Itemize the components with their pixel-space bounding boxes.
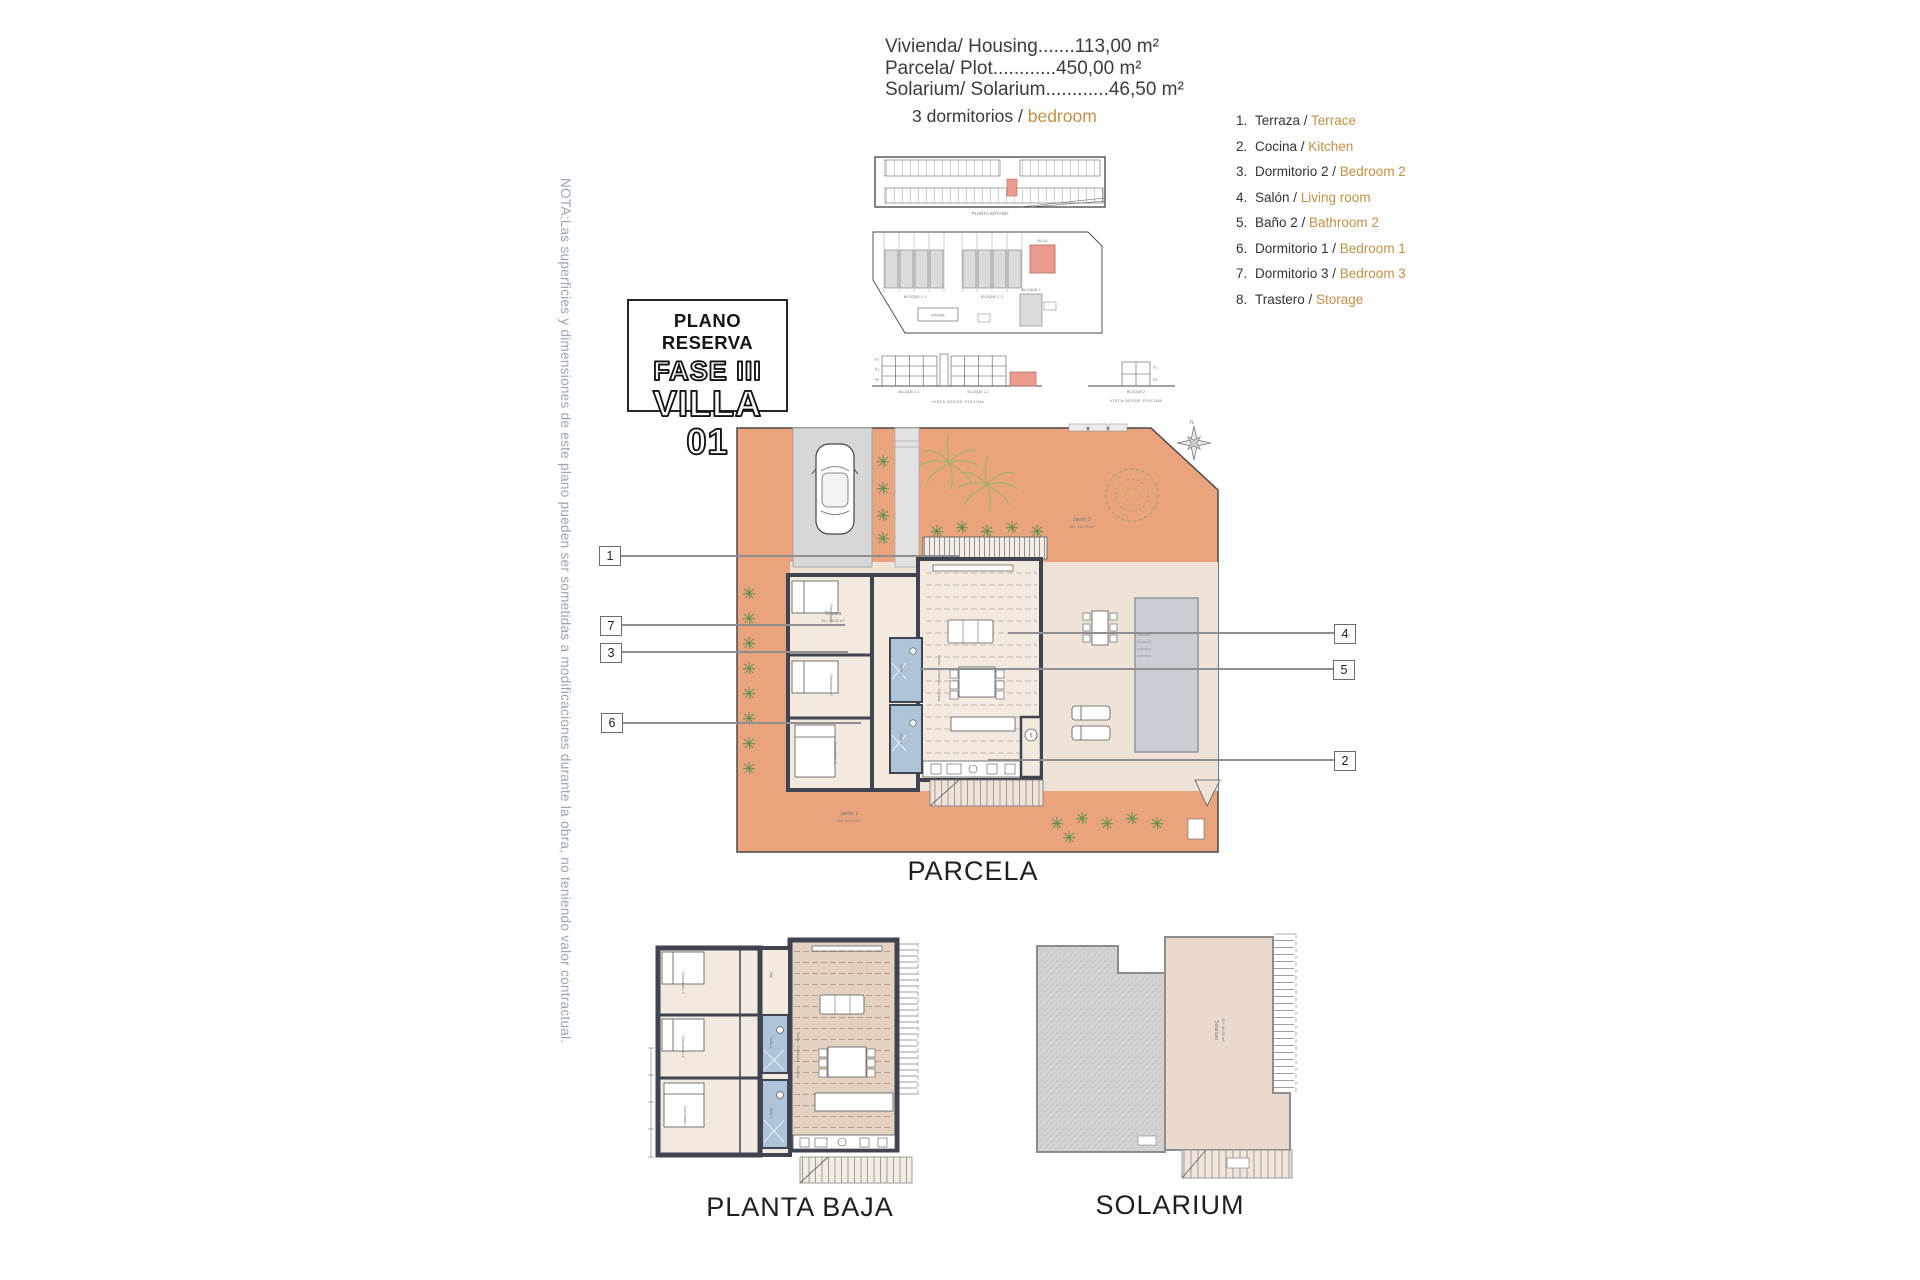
legend-item-dormitorio3: 7.Dormitorio 3 / Bedroom 3 <box>1236 266 1406 281</box>
bathroom-1 <box>890 705 922 773</box>
svg-text:8: 8 <box>1030 733 1033 739</box>
callout-box-4: 4 <box>1334 624 1356 644</box>
compass-icon: N <box>1177 420 1211 460</box>
callout-line-5 <box>920 668 1333 670</box>
callout-box-5: 5 <box>1333 660 1355 680</box>
callout-line-4 <box>1008 632 1334 634</box>
svg-text:Jardín 1: Jardín 1 <box>840 811 858 817</box>
bedrooms-heading: 3 dormitorios / bedroom <box>912 106 1097 127</box>
highlighted-villa-elevation <box>1010 372 1036 386</box>
sofa <box>948 620 993 643</box>
basement-caption: PLANTA SÓTANO <box>972 210 1009 216</box>
svg-text:BLOQUE 2: BLOQUE 2 <box>1127 390 1145 394</box>
svg-text:Dormitorio 2: Dormitorio 2 <box>829 674 834 697</box>
vertical-disclaimer-note: NOTA:Las superficies y dimensiones de es… <box>558 178 573 923</box>
svg-text:Salón - Comedor - Cocina: Salón - Comedor - Cocina <box>937 655 942 702</box>
pool <box>1135 598 1198 752</box>
villa-building: 8 <box>788 559 1041 790</box>
pb-bathroom-1 <box>762 1080 788 1148</box>
svg-text:P1: P1 <box>875 368 879 372</box>
tv-bench <box>933 565 1013 571</box>
utility-box <box>1188 819 1204 839</box>
plan-key-chips <box>1069 424 1127 431</box>
callout-box-1: 1 <box>599 546 621 566</box>
svg-text:Baño 1: Baño 1 <box>899 733 903 744</box>
svg-text:BLOQUE 1.2: BLOQUE 1.2 <box>968 390 989 394</box>
svg-text:Dormitorio 1: Dormitorio 1 <box>683 1106 688 1129</box>
pergola-slats <box>899 943 918 1097</box>
site-diagrams-svg: PLANTA SÓTANO VILLA BLOQUE 1.1 BLOQ <box>870 150 1180 410</box>
callout-box-2: 2 <box>1334 751 1356 771</box>
callout-line-1 <box>619 555 959 557</box>
storage-room: 8 <box>1021 717 1041 777</box>
roof-hatch <box>1138 1136 1156 1145</box>
svg-text:Dormitorio 1: Dormitorio 1 <box>833 742 838 765</box>
svg-text:Solarium: Solarium <box>1213 1020 1219 1040</box>
pool-view-elevations: P2 P1 P0 BLOQUE 1.1 BLOQUE 1.2 VISTA DES… <box>872 354 1175 404</box>
pb-kitchen-island <box>815 1093 893 1111</box>
solarium-label: SOLARIUM <box>1015 1190 1325 1221</box>
svg-text:VISTA DESDE PISCINA: VISTA DESDE PISCINA <box>932 399 985 404</box>
exterior-stairs <box>930 780 1043 806</box>
kitchen-counter <box>923 761 1035 777</box>
legend-item-terraza: 1.Terraza / Terrace <box>1236 113 1406 128</box>
pb-bathroom-2 <box>762 1015 788 1073</box>
callout-line-3 <box>620 651 848 653</box>
highlighted-villa-garage <box>1007 179 1017 196</box>
legend-item-salon: 4.Salón / Living room <box>1236 190 1406 205</box>
svg-text:BLOQUE 1.1: BLOQUE 1.1 <box>904 295 926 299</box>
svg-text:P0: P0 <box>875 378 879 382</box>
svg-text:VILLA: VILLA <box>1037 239 1048 243</box>
callout-box-3: 3 <box>600 643 622 663</box>
legend-item-dormitorio1: 6.Dormitorio 1 / Bedroom 1 <box>1236 241 1406 256</box>
svg-text:Baño 2: Baño 2 <box>769 1037 773 1048</box>
svg-text:Dormitorio 3: Dormitorio 3 <box>681 972 686 995</box>
solarium-svg: Solarium SU: 46,50 m² <box>1020 930 1340 1200</box>
dining-table <box>950 667 1004 699</box>
spec-solarium: Solarium/ Solarium............46,50 m² <box>885 79 1184 101</box>
bathroom-2 <box>890 638 922 702</box>
legend-item-trastero: 8.Trastero / Storage <box>1236 292 1406 307</box>
highlighted-villa-plot <box>1030 245 1055 273</box>
pb-sofa <box>820 995 864 1014</box>
title-line-plano-reserva: PLANO RESERVA <box>629 310 786 354</box>
kitchen-island <box>951 717 1015 731</box>
surface-specs: Vivienda/ Housing.......113,00 m² Parcel… <box>885 36 1184 101</box>
sol-pergola <box>1274 934 1296 1092</box>
room-legend: 1.Terraza / Terrace 2.Cocina / Kitchen 3… <box>1236 113 1406 317</box>
svg-text:Salón - Comedor - Cocina: Salón - Comedor - Cocina <box>796 1032 801 1079</box>
callout-box-7: 7 <box>600 616 622 636</box>
dimension-ruler <box>648 1048 654 1157</box>
svg-text:BLOQUE 1.1: BLOQUE 1.1 <box>899 390 920 394</box>
svg-text:Baño 2: Baño 2 <box>899 664 903 675</box>
svg-text:Dormitorio 2: Dormitorio 2 <box>681 1036 686 1059</box>
svg-text:Baño 1: Baño 1 <box>769 1107 773 1118</box>
svg-text:P0: P0 <box>1153 378 1157 382</box>
svg-text:PISCINA: PISCINA <box>931 314 945 318</box>
spec-housing: Vivienda/ Housing.......113,00 m² <box>885 36 1184 58</box>
callout-line-2 <box>988 759 1334 761</box>
svg-text:P2: P2 <box>875 358 879 362</box>
sol-stairs <box>1182 1150 1292 1178</box>
planta-baja-svg: Dormitorio 3 Dormitorio 2 Dormitorio 1 H… <box>650 935 950 1225</box>
basement-plan: PLANTA SÓTANO <box>875 157 1105 216</box>
callout-box-6: 6 <box>601 713 623 733</box>
parcela-plan-svg: 8 <box>737 423 1218 855</box>
svg-text:VISTA DESDE PISCINA: VISTA DESDE PISCINA <box>1110 398 1163 403</box>
parcela-label: PARCELA <box>843 856 1103 887</box>
planta-baja-label: PLANTA BAJA <box>650 1192 950 1223</box>
gravel-roof <box>1037 946 1165 1152</box>
spec-plot: Parcela/ Plot............450,00 m² <box>885 58 1184 80</box>
pb-kitchen-counter <box>793 1135 895 1149</box>
callout-line-6 <box>621 722 861 724</box>
site-plan: VILLA BLOQUE 1.1 BLOQUE 1.2 BLOQUE 2 PIS… <box>873 232 1102 333</box>
title-line-fase: FASE III <box>629 356 786 386</box>
solarium-terrace <box>1165 937 1290 1150</box>
svg-text:N: N <box>1190 420 1194 426</box>
bedrooms-heading-en: bedroom <box>1028 106 1097 126</box>
svg-text:BLOQUE 2: BLOQUE 2 <box>1022 288 1041 292</box>
pb-tv-bench <box>812 946 882 951</box>
bedrooms-heading-es: 3 dormitorios / <box>912 106 1028 126</box>
svg-text:Jardín 2: Jardín 2 <box>1073 517 1091 523</box>
legend-item-dormitorio2: 3.Dormitorio 2 / Bedroom 2 <box>1236 164 1406 179</box>
svg-text:P1: P1 <box>1153 366 1157 370</box>
entry-walkway <box>895 428 919 567</box>
car-icon <box>812 444 858 534</box>
pb-stairs <box>800 1157 912 1183</box>
legend-item-bano2: 5.Baño 2 / Bathroom 2 <box>1236 215 1406 230</box>
title-box: PLANO RESERVA FASE III VILLA 01 <box>627 299 788 412</box>
sol-labels: Solarium SU: 46,50 m² <box>1213 1018 1226 1042</box>
svg-text:SU: 46,50 m²: SU: 46,50 m² <box>1221 1018 1226 1042</box>
outdoor-dining-set <box>1083 611 1117 645</box>
svg-text:SU: 62,00 m²: SU: 62,00 m² <box>837 818 861 823</box>
svg-text:BLOQUE 1.2: BLOQUE 1.2 <box>981 295 1003 299</box>
svg-text:Hall: Hall <box>769 972 773 978</box>
legend-item-cocina: 2.Cocina / Kitchen <box>1236 139 1406 154</box>
svg-text:SU: 111,00 m²: SU: 111,00 m² <box>1069 524 1095 529</box>
callout-line-7 <box>620 624 845 626</box>
plan-sheet: NOTA:Las superficies y dimensiones de es… <box>0 0 1920 1280</box>
